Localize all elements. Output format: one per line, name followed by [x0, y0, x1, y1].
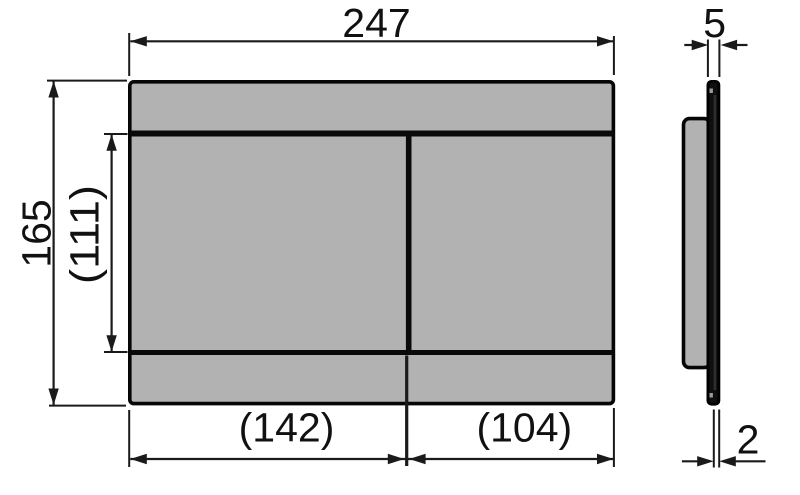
svg-text:(142): (142) [239, 405, 335, 451]
svg-text:5: 5 [703, 0, 726, 46]
svg-text:(104): (104) [476, 405, 572, 451]
svg-text:(111): (111) [62, 185, 108, 284]
svg-text:165: 165 [13, 199, 59, 267]
svg-text:2: 2 [737, 417, 760, 463]
svg-text:247: 247 [342, 0, 410, 46]
